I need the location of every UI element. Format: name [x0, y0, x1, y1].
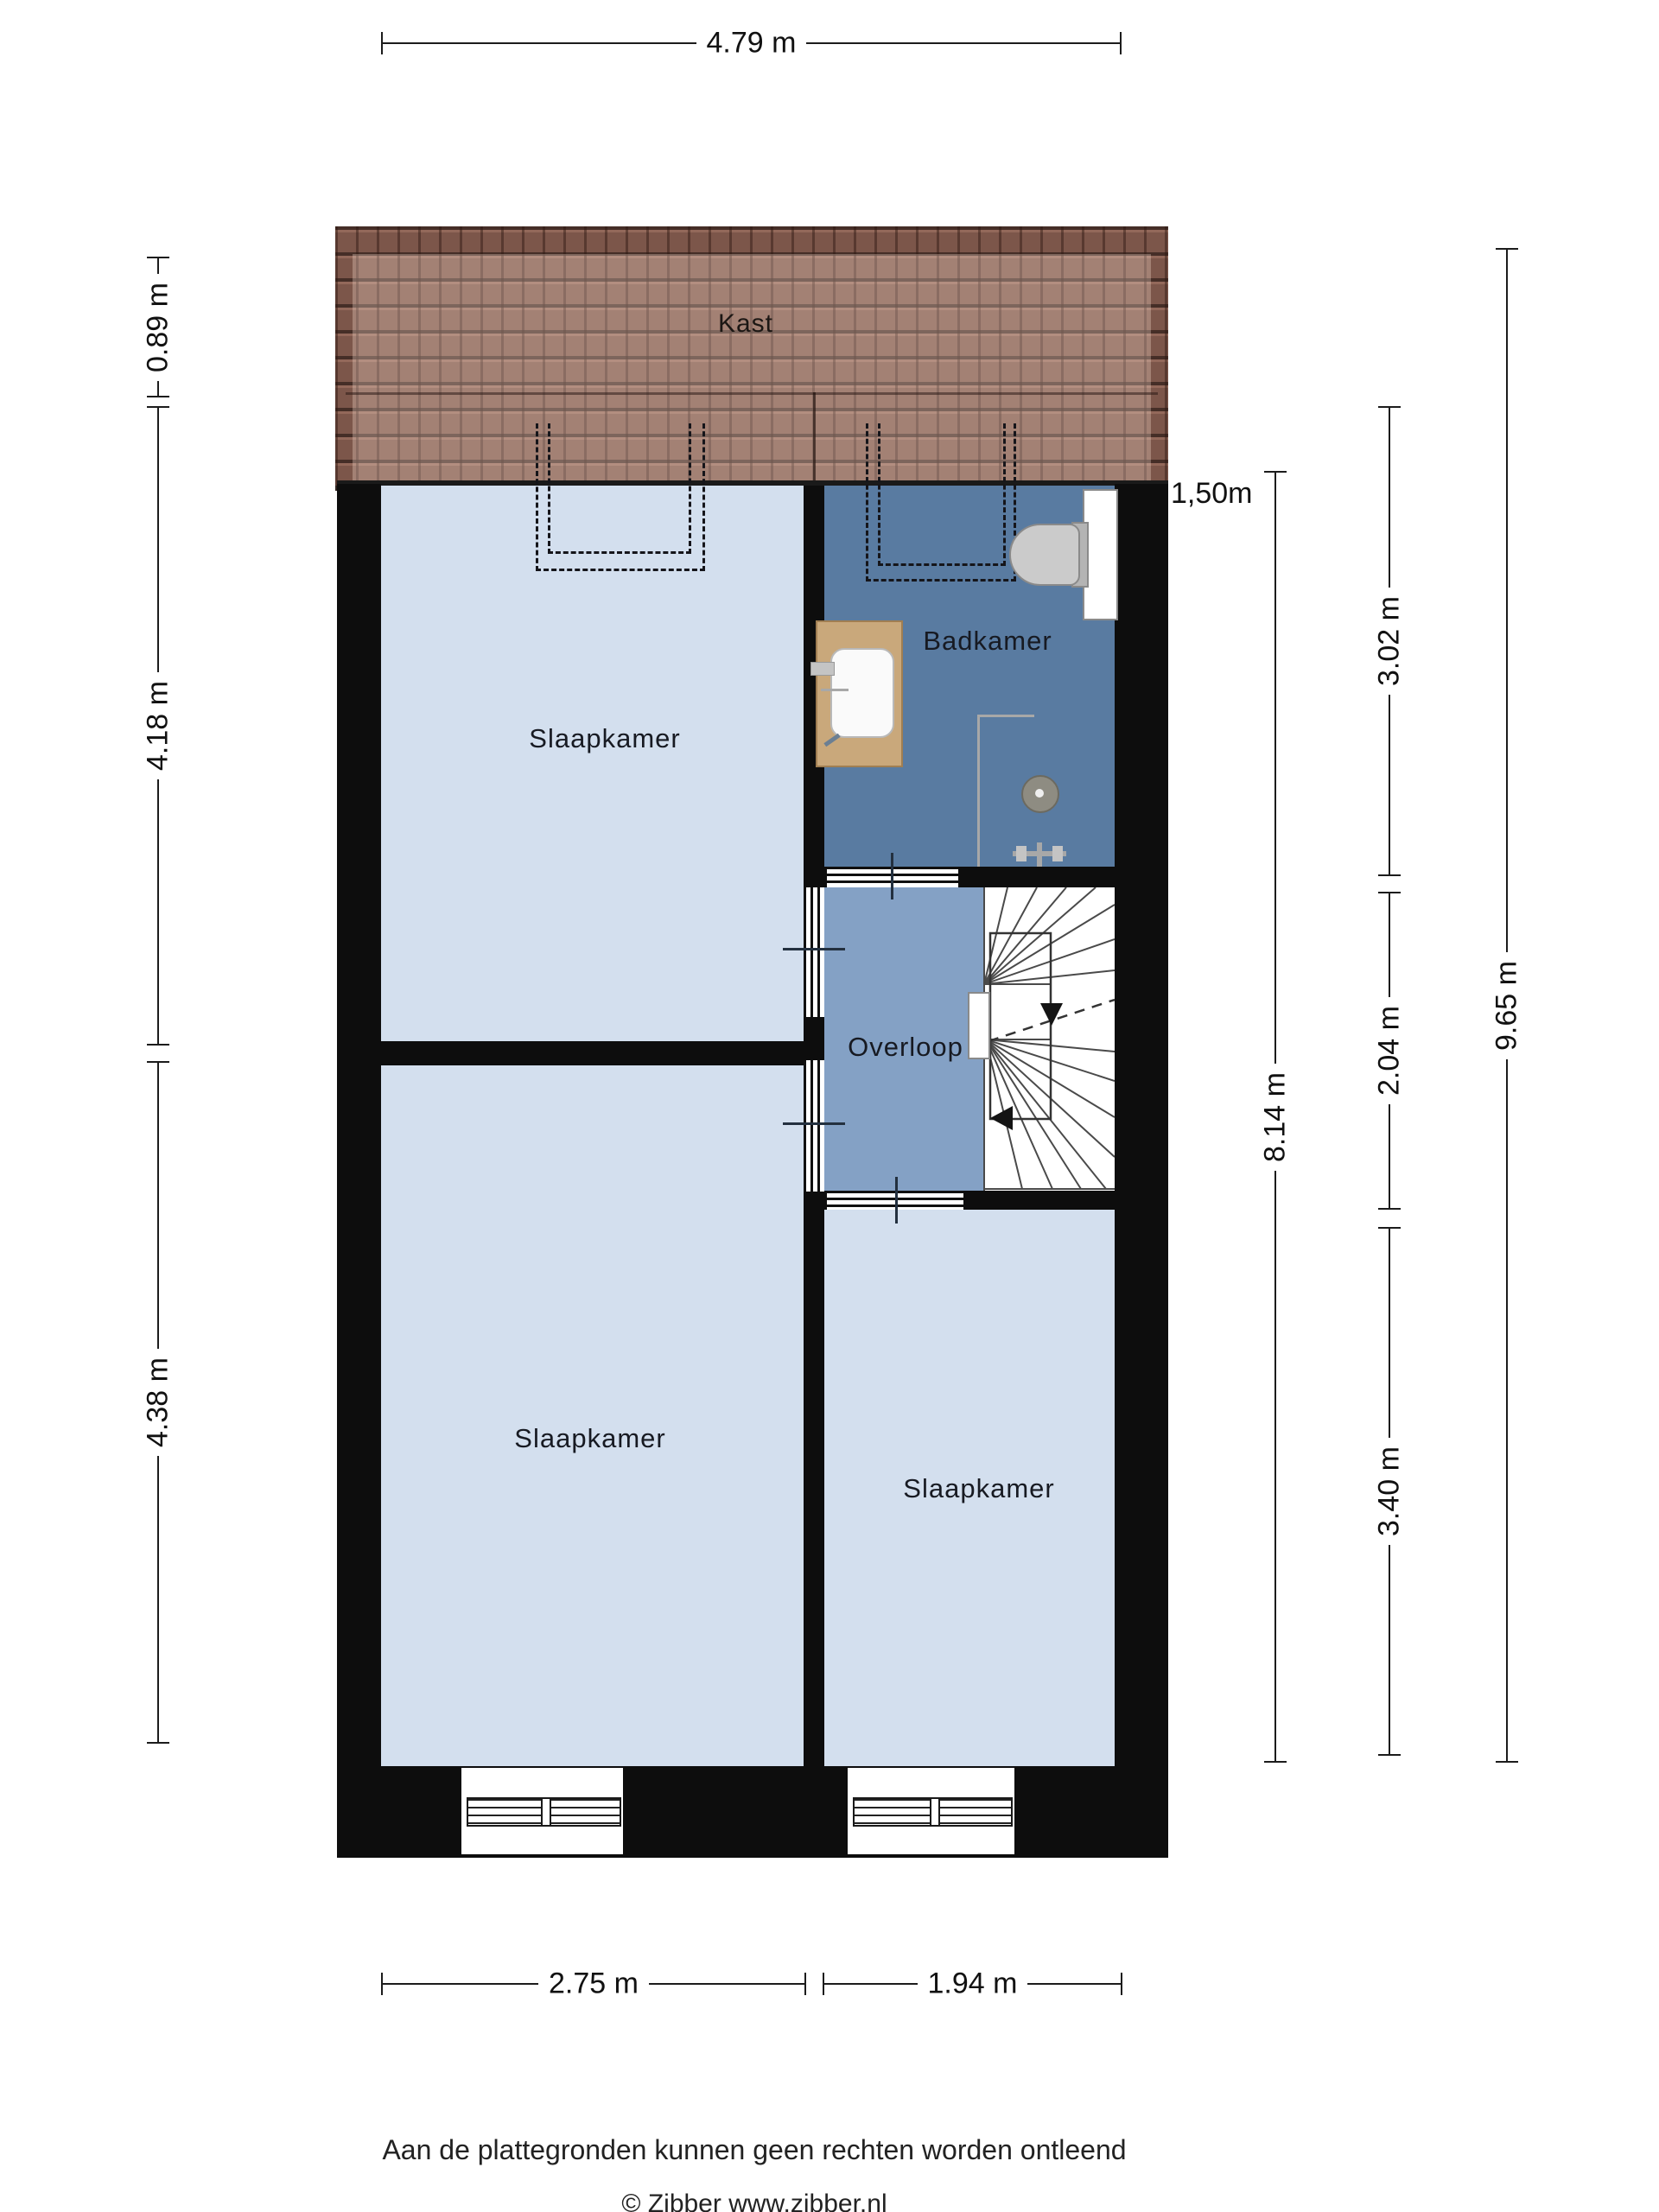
room-label-slaapkamer-bottom-right: Slaapkamer: [903, 1473, 1054, 1504]
dimension-right-lower-label: 3.40 m: [1371, 1438, 1408, 1545]
dimension-top-width: 4.79 m: [381, 42, 1122, 44]
dimension-right-upper: 3.02 m: [1389, 406, 1390, 876]
toilet-icon: [1009, 524, 1080, 586]
wall-between-bottom-bedrooms: [804, 1210, 824, 1766]
door-slaapkamer-top: [804, 887, 824, 1017]
room-label-badkamer: Badkamer: [923, 626, 1052, 657]
dimension-right-inner-total: 8.14 m: [1274, 471, 1276, 1763]
shower-rail-arm: [977, 715, 1034, 717]
floor-plan-page: Kast: [0, 0, 1659, 2212]
faucet-spout: [821, 689, 849, 691]
wall-top-edge: [337, 480, 1168, 486]
shower-rail: [977, 715, 980, 867]
footer-disclaimer: Aan de plattegronden kunnen geen rechten…: [382, 2134, 1126, 2166]
shower-head-center: [1035, 789, 1044, 798]
dimension-left-lower-label: 4.38 m: [140, 1349, 177, 1456]
roof-wall-divider-line: [813, 392, 816, 486]
dimension-right-lower: 3.40 m: [1389, 1227, 1390, 1756]
window-right: [853, 1797, 1013, 1827]
wall-between-left-bedrooms: [381, 1041, 804, 1065]
footer-credit: © Zibber www.zibber.nl: [621, 2190, 887, 2212]
shower-mixer-knob-left: [1016, 846, 1027, 861]
room-label-slaapkamer-top: Slaapkamer: [529, 723, 680, 754]
dimension-left-lower: 4.38 m: [157, 1061, 159, 1744]
dimension-bottom-right-label: 1.94 m: [918, 1966, 1028, 2003]
room-label-kast: Kast: [718, 309, 773, 339]
dimension-bottom-left-label: 2.75 m: [538, 1966, 649, 2003]
door-slaapkamer-bottom-left: [804, 1060, 824, 1192]
dimension-right-outer-total: 9.65 m: [1506, 248, 1508, 1763]
dimension-right-middle-label: 2.04 m: [1371, 997, 1408, 1104]
stairs: [983, 887, 1115, 1191]
stair-door-leaf: [968, 992, 990, 1059]
kast-zone-overlay: [353, 254, 1151, 480]
window-right-mullion: [930, 1799, 940, 1825]
shower-mixer-knob-right: [1052, 846, 1063, 861]
dimension-bottom-left: 2.75 m: [381, 1983, 806, 1985]
door-slaapkamer-bottom-right-frame-tick: [895, 1177, 898, 1224]
roof-window-outline-right-inner: [878, 423, 1006, 566]
dimension-right-middle: 2.04 m: [1389, 892, 1390, 1210]
dimension-bottom-right: 1.94 m: [823, 1983, 1122, 1985]
dimension-roof-depth-label: 1,50m: [1171, 477, 1253, 511]
door-badkamer-frame-tick: [891, 853, 893, 899]
dimension-left-upper: 4.18 m: [157, 406, 159, 1046]
door-slaapkamer-top-frame-tick: [783, 948, 845, 950]
roof-ridge-line: [346, 392, 1158, 395]
faucet-icon: [810, 662, 835, 676]
dimension-right-outer-total-label: 9.65 m: [1489, 952, 1526, 1059]
stairs-icon: [983, 887, 1115, 1191]
window-left: [467, 1797, 621, 1827]
roof-tiles: [335, 226, 1168, 491]
shower-mixer-handle: [1037, 842, 1042, 867]
dimension-right-upper-label: 3.02 m: [1371, 588, 1408, 695]
room-label-overloop: Overloop: [848, 1032, 963, 1063]
sink-icon: [830, 648, 894, 738]
wall-overloop-left-segment: [804, 1017, 824, 1060]
dimension-right-inner-total-label: 8.14 m: [1257, 1064, 1294, 1171]
dimension-left-upper-label: 4.18 m: [140, 672, 177, 779]
room-label-slaapkamer-bottom-left: Slaapkamer: [514, 1423, 665, 1454]
window-left-mullion: [541, 1799, 551, 1825]
dimension-left-roof-label: 0.89 m: [140, 274, 177, 381]
wall-exterior-right: [1115, 484, 1168, 1858]
dimension-top-width-label: 4.79 m: [696, 25, 807, 62]
door-slaapkamer-bottom-left-frame-tick: [783, 1122, 845, 1125]
roof-window-outline-left-inner: [548, 423, 691, 554]
wall-exterior-left: [337, 484, 381, 1858]
dimension-left-roof: 0.89 m: [157, 257, 159, 397]
room-slaapkamer-bottom-left: [381, 1065, 804, 1766]
